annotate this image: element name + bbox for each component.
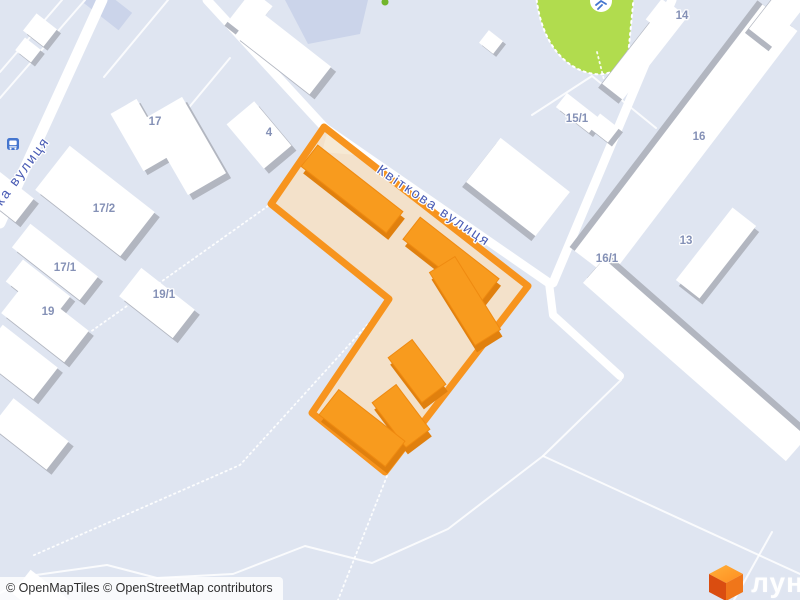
house-number: 16 (693, 131, 706, 143)
house-number: 17/1 (54, 262, 77, 274)
house-number: 16/1 (596, 253, 619, 265)
map-attribution[interactable]: © OpenMapTiles © OpenStreetMap contribut… (0, 577, 283, 600)
lun-logo[interactable]: лун (708, 564, 800, 600)
map-viewport[interactable]: Квіткова вулиця ька вулиця 17 4 17/2 17/… (0, 0, 800, 600)
house-number: 17 (149, 116, 162, 128)
house-number: 17/2 (93, 203, 115, 215)
map-canvas[interactable]: Квіткова вулиця ька вулиця 17 4 17/2 17/… (0, 0, 800, 600)
house-number: 13 (680, 235, 693, 247)
house-number: 15/1 (566, 113, 589, 125)
bus-stop-icon[interactable] (7, 138, 19, 150)
house-number: 4 (266, 127, 273, 139)
house-number: 19/1 (153, 289, 176, 301)
house-number: 14 (676, 10, 689, 22)
house-number: 19 (42, 306, 55, 318)
lun-wordmark: лун (751, 569, 800, 597)
lun-cube-icon (708, 564, 744, 600)
